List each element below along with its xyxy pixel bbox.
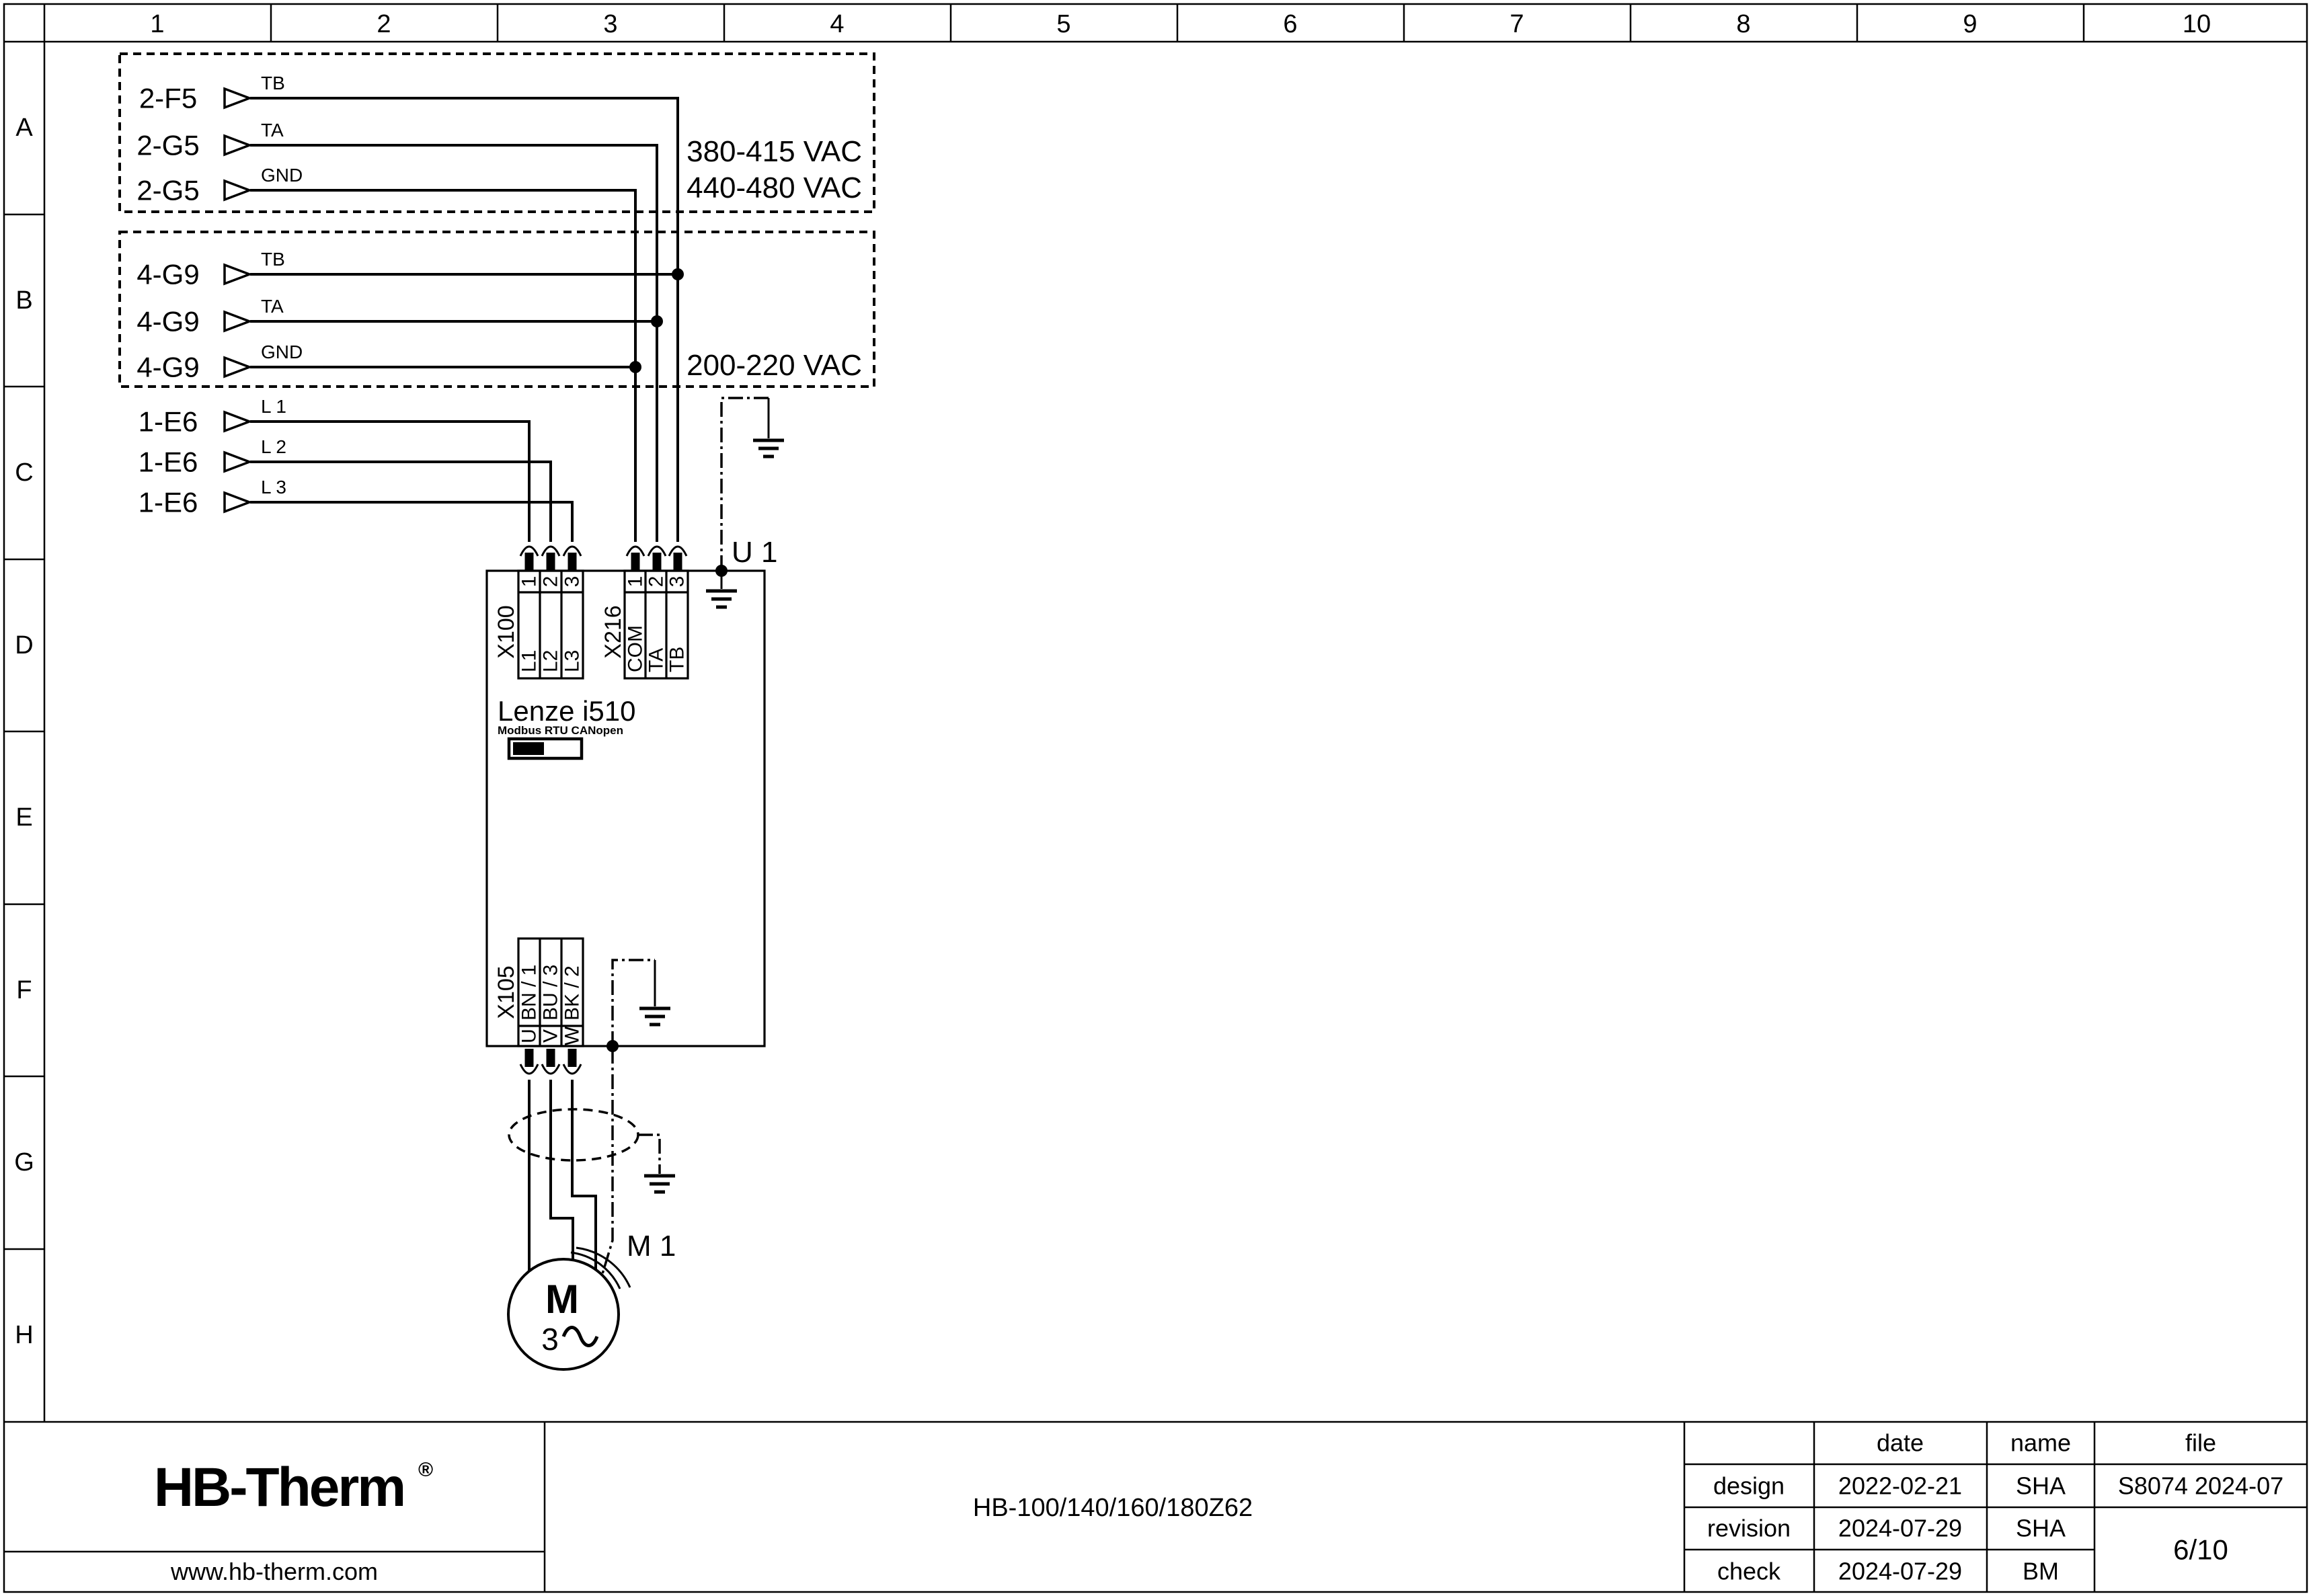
- terminal-pin: 3: [561, 576, 584, 588]
- revision-date: 2024-07-29: [1838, 1515, 1962, 1542]
- comm-label: Modbus RTU CANopen: [498, 724, 623, 737]
- pin-bar-icon: [547, 553, 555, 571]
- device-ref: 4-G9: [136, 352, 199, 383]
- pin-bar-icon: [568, 1049, 577, 1067]
- mains-input: 1-E6 1-E6 1-E6 L 1 L 2 L 3: [139, 396, 286, 518]
- wire-ta-a: [250, 145, 657, 542]
- terminal-block-name: X100: [494, 605, 519, 658]
- row-label: H: [15, 1321, 33, 1349]
- terminal-block-x100: 1 2 3 L1 L2 L3 X100: [494, 571, 584, 678]
- row-label-design: design: [1713, 1472, 1785, 1500]
- comm-switch: [509, 739, 582, 758]
- supply-box-380v: 2-F5 2-G5 2-G5 TB TA GND 380-415 VAC 440…: [120, 54, 874, 212]
- design-name: SHA: [2016, 1472, 2066, 1500]
- pin-bar-icon: [653, 553, 662, 571]
- terminal-pin: 1: [625, 576, 647, 588]
- device-ref: 1-E6: [139, 406, 198, 438]
- row-label: D: [15, 631, 33, 660]
- device-ref: 2-F5: [139, 83, 197, 114]
- column-label: 1: [150, 10, 164, 38]
- pin-bar-icon: [525, 1049, 534, 1067]
- signal-arrow: [225, 493, 249, 512]
- signal-label: L 1: [261, 396, 286, 417]
- row-label-revision: revision: [1707, 1515, 1791, 1542]
- motor-designator: M 1: [627, 1230, 676, 1263]
- connector-pins-top: [520, 547, 687, 571]
- device-ref: 1-E6: [139, 487, 198, 518]
- voltage-label: 380-415 VAC: [687, 135, 862, 168]
- row-label: F: [16, 976, 32, 1004]
- terminal-wire-label: BK / 2: [561, 965, 584, 1021]
- title-block: HB-Therm ® www.hb-therm.com HB-100/140/1…: [4, 1422, 2307, 1592]
- wire-l1: [250, 422, 529, 542]
- page-border: [4, 4, 2307, 1592]
- u1-earth: U 1: [706, 398, 784, 607]
- terminal-block-x216: 1 2 3 COM TA TB X216: [600, 571, 689, 678]
- earth-icon: [639, 1008, 670, 1025]
- pe-dashdot-line: [602, 1049, 613, 1276]
- company-logo: HB-Therm ®: [154, 1457, 433, 1518]
- signal-label: GND: [261, 165, 303, 186]
- switch-knob: [513, 742, 544, 755]
- drive-block: 1 2 3 L1 L2 L3 X100 1 2 3 COM TA TB X216…: [487, 547, 765, 1074]
- motor-phase: 3: [541, 1322, 559, 1357]
- col-header-date: date: [1877, 1429, 1924, 1457]
- column-label: 6: [1283, 10, 1297, 38]
- junction-dot: [651, 315, 663, 327]
- column-label: 4: [830, 10, 844, 38]
- column-label: 10: [2183, 10, 2211, 38]
- terminal-pin: 2: [540, 576, 562, 588]
- signal-label: TA: [261, 296, 284, 317]
- connector-pins-bottom: [520, 1049, 581, 1074]
- junction-dot: [672, 268, 684, 280]
- terminal-pin: 3: [666, 576, 689, 588]
- signal-label: L 3: [261, 477, 286, 497]
- schematic-page: 1 2 3 4 5 6 7 8 9 10 A B C D E F G H: [0, 0, 2311, 1596]
- device-ref: 4-G9: [136, 306, 199, 337]
- terminal-pin: 1: [518, 576, 541, 588]
- signal-arrow: [225, 412, 249, 431]
- revision-name: SHA: [2016, 1515, 2066, 1542]
- terminal-pin: U: [518, 1029, 541, 1043]
- voltage-label: 440-480 VAC: [687, 171, 862, 204]
- terminal-wire-label: COM: [625, 625, 647, 672]
- terminal-wire-label: L1: [518, 650, 541, 672]
- junction-dot: [629, 361, 641, 373]
- wire-l3: [250, 502, 572, 542]
- ac-tilde-icon: [563, 1328, 597, 1346]
- pin-bar-icon: [674, 553, 682, 571]
- company-name: HB-Therm: [154, 1457, 404, 1518]
- terminal-wire-label: TB: [666, 647, 689, 672]
- design-date: 2022-02-21: [1838, 1472, 1962, 1500]
- signal-arrow: [225, 265, 249, 284]
- check-date: 2024-07-29: [1838, 1558, 1962, 1585]
- row-label: A: [15, 114, 33, 142]
- terminal-wire-label: BN / 1: [518, 965, 541, 1021]
- wire-v: [551, 1080, 573, 1261]
- page-number: 6/10: [2173, 1534, 2228, 1566]
- signal-label: TB: [261, 249, 285, 270]
- terminal-pin: 2: [645, 576, 668, 588]
- terminal-block-x105: BN / 1 BU / 3 BK / 2 U V W X105: [494, 939, 584, 1046]
- row-label: C: [15, 458, 33, 487]
- outer-border: [4, 4, 2307, 1592]
- signal-arrow: [225, 358, 249, 376]
- signal-label: L 2: [261, 436, 286, 457]
- col-header-file: file: [2185, 1429, 2216, 1457]
- row-label-check: check: [1717, 1558, 1781, 1585]
- column-label: 3: [603, 10, 617, 38]
- row-label: E: [15, 803, 32, 832]
- signal-arrow: [225, 452, 249, 471]
- drive-designator: U 1: [732, 536, 777, 569]
- col-header-name: name: [2010, 1429, 2071, 1457]
- registered-mark: ®: [418, 1459, 433, 1481]
- column-label: 8: [1736, 10, 1750, 38]
- column-label: 7: [1510, 10, 1524, 38]
- earth-icon: [706, 591, 737, 607]
- terminal-pin: W: [561, 1026, 584, 1045]
- column-label: 9: [1963, 10, 1977, 38]
- signal-label: TB: [261, 73, 285, 93]
- pe-dashdot-line: [613, 960, 655, 1046]
- signal-arrow: [225, 89, 249, 108]
- signal-arrow: [225, 312, 249, 331]
- motor-letter: M: [545, 1277, 579, 1322]
- voltage-label: 200-220 VAC: [687, 349, 862, 382]
- pin-bar-icon: [631, 553, 640, 571]
- terminal-wire-label: L2: [540, 650, 562, 672]
- terminal-pin: V: [540, 1029, 562, 1043]
- wires: [250, 98, 684, 1271]
- terminal-block-name: X105: [494, 965, 519, 1019]
- pin-bar-icon: [568, 553, 577, 571]
- earth-icon: [753, 440, 784, 456]
- signal-arrow: [225, 181, 249, 200]
- check-name: BM: [2023, 1558, 2059, 1585]
- company-website: www.hb-therm.com: [170, 1558, 378, 1585]
- pin-bar-icon: [547, 1049, 555, 1067]
- terminal-wire-label: TA: [645, 648, 668, 672]
- drive-internal-earth: [606, 960, 670, 1052]
- pe-dashdot-line: [638, 1135, 660, 1174]
- signal-label: GND: [261, 342, 303, 362]
- column-ruler: 1 2 3 4 5 6 7 8 9 10: [150, 4, 2211, 42]
- device-ref: 2-G5: [136, 130, 199, 161]
- signal-label: TA: [261, 120, 284, 141]
- file-number: S8074 2024-07: [2118, 1472, 2283, 1500]
- terminal-wire-label: L3: [561, 650, 584, 672]
- terminal-block-name: X216: [600, 605, 626, 658]
- signal-arrow: [225, 136, 249, 155]
- row-ruler: A B C D E F G H: [4, 114, 44, 1349]
- device-ref: 2-G5: [136, 175, 199, 206]
- column-label: 5: [1056, 10, 1070, 38]
- device-ref: 1-E6: [139, 446, 198, 478]
- pin-bar-icon: [525, 553, 534, 571]
- drawing-title: HB-100/140/160/180Z62: [973, 1494, 1253, 1522]
- row-label: B: [15, 286, 32, 315]
- row-label: G: [14, 1148, 34, 1176]
- device-ref: 4-G9: [136, 259, 199, 290]
- supply-box-200v: 4-G9 4-G9 4-G9 TB TA GND 200-220 VAC: [120, 232, 874, 387]
- column-label: 2: [377, 10, 391, 38]
- drive-name: Lenze i510: [498, 695, 636, 727]
- motor: M 3 M 1: [508, 1230, 676, 1369]
- terminal-wire-label: BU / 3: [540, 965, 562, 1021]
- earth-icon: [644, 1176, 675, 1192]
